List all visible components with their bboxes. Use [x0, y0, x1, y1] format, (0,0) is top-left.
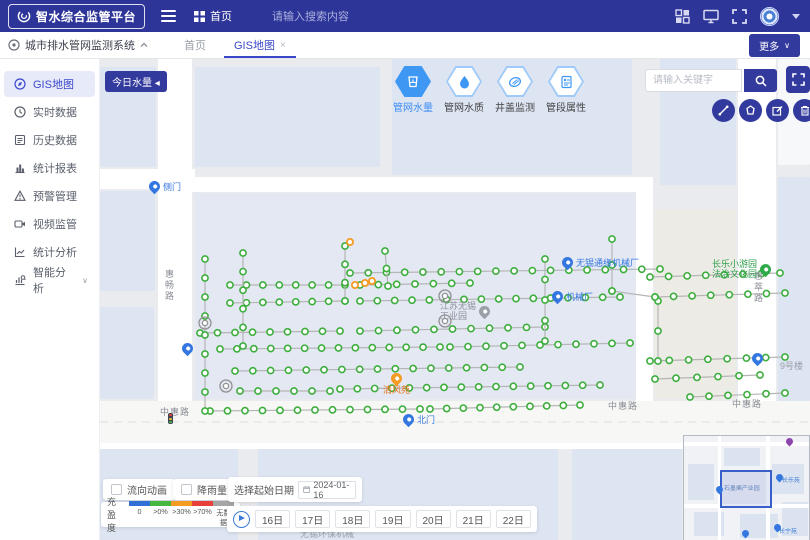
- manhole-marker-green[interactable]: [639, 266, 645, 272]
- today-water-volume-button[interactable]: 今日水量 ◂: [105, 71, 167, 92]
- manhole-marker-green[interactable]: [782, 290, 788, 296]
- manhole-marker-green[interactable]: [708, 292, 714, 298]
- manhole-marker-green[interactable]: [309, 282, 315, 288]
- manhole-marker-green[interactable]: [428, 365, 434, 371]
- manhole-marker-green[interactable]: [392, 297, 398, 303]
- layer-manhole-monitor-button[interactable]: 井盖监测: [494, 66, 536, 114]
- manhole-marker-orange[interactable]: [352, 282, 358, 288]
- manhole-marker-green[interactable]: [496, 296, 502, 302]
- sidebar-item-history-data[interactable]: 历史数据: [4, 127, 95, 153]
- manhole-marker-green[interactable]: [427, 406, 433, 412]
- manhole-marker-green[interactable]: [465, 344, 471, 350]
- manhole-marker-green[interactable]: [560, 402, 566, 408]
- manhole-marker-green[interactable]: [409, 297, 415, 303]
- manhole-marker-green[interactable]: [240, 250, 246, 256]
- manhole-marker-green[interactable]: [545, 383, 551, 389]
- manhole-marker-green[interactable]: [309, 298, 315, 304]
- manhole-marker-green[interactable]: [260, 299, 266, 305]
- ruler-icon: [718, 105, 729, 116]
- manhole-marker-green[interactable]: [325, 282, 331, 288]
- manhole-marker-green[interactable]: [294, 407, 300, 413]
- manhole-marker-green[interactable]: [744, 392, 750, 398]
- day-button-16[interactable]: 16日: [255, 510, 290, 528]
- manhole-marker-green[interactable]: [685, 357, 691, 363]
- manhole-marker-green[interactable]: [609, 236, 615, 242]
- manhole-marker-green[interactable]: [501, 343, 507, 349]
- header-home-link[interactable]: 首页: [194, 8, 232, 24]
- manhole-marker-green[interactable]: [329, 407, 335, 413]
- manhole-marker-green[interactable]: [689, 293, 695, 299]
- day-button-22[interactable]: 22日: [496, 510, 531, 528]
- manhole-marker-green[interactable]: [260, 282, 266, 288]
- map-road: [158, 59, 192, 441]
- layer-pipe-attribute-button[interactable]: 管段属性: [545, 66, 587, 114]
- manhole-marker-green[interactable]: [542, 317, 548, 323]
- manhole-marker-green[interactable]: [232, 368, 238, 374]
- manhole-marker-green[interactable]: [617, 294, 623, 300]
- manhole-marker-green[interactable]: [291, 388, 297, 394]
- manhole-marker-green[interactable]: [347, 270, 353, 276]
- manhole-marker-green[interactable]: [591, 341, 597, 347]
- manhole-marker-green[interactable]: [673, 375, 679, 381]
- manhole-marker-green[interactable]: [652, 376, 658, 382]
- manhole-marker-green[interactable]: [555, 342, 561, 348]
- app-title: 智水综合监管平台: [36, 8, 136, 25]
- manhole-marker-green[interactable]: [202, 275, 208, 281]
- map-pin-icon[interactable]: [560, 255, 576, 271]
- draw-edit-button[interactable]: [766, 99, 789, 122]
- manhole-marker-green[interactable]: [726, 292, 732, 298]
- map-pin-icon[interactable]: [750, 351, 766, 367]
- manhole-marker-green[interactable]: [523, 324, 529, 330]
- manhole-marker-green[interactable]: [372, 385, 378, 391]
- manhole-marker-green[interactable]: [242, 408, 248, 414]
- manhole-marker-green[interactable]: [357, 366, 363, 372]
- manhole-marker-green[interactable]: [382, 248, 388, 254]
- manhole-marker-green[interactable]: [782, 390, 788, 396]
- manhole-marker-green[interactable]: [374, 298, 380, 304]
- manhole-marker-green[interactable]: [335, 345, 341, 351]
- bar-chart-icon: [14, 162, 26, 174]
- manhole-marker-green[interactable]: [438, 269, 444, 275]
- manhole-marker-green[interactable]: [202, 256, 208, 262]
- manhole-marker-green[interactable]: [259, 407, 265, 413]
- manhole-marker-green[interactable]: [268, 367, 274, 373]
- manhole-marker-green[interactable]: [573, 341, 579, 347]
- manhole-marker-green[interactable]: [577, 402, 583, 408]
- manhole-marker-green[interactable]: [392, 366, 398, 372]
- manhole-marker-green[interactable]: [357, 328, 363, 334]
- day-button-19[interactable]: 19日: [375, 510, 410, 528]
- manhole-marker-green[interactable]: [684, 273, 690, 279]
- manhole-marker-green[interactable]: [354, 386, 360, 392]
- manhole-marker-green[interactable]: [486, 325, 492, 331]
- manhole-marker-green[interactable]: [460, 405, 466, 411]
- manhole-marker-green[interactable]: [647, 274, 653, 280]
- sidebar-item-statistics-report[interactable]: 统计报表: [4, 155, 95, 181]
- manhole-marker-green[interactable]: [268, 345, 274, 351]
- manhole-marker-green[interactable]: [251, 346, 257, 352]
- collapse-chevron-icon[interactable]: [140, 42, 148, 48]
- manhole-marker-green[interactable]: [519, 342, 525, 348]
- legend-scale: 0 >0% >30% >70% 无数据: [129, 501, 234, 529]
- manhole-marker-green[interactable]: [777, 270, 783, 276]
- manhole-marker-green[interactable]: [694, 374, 700, 380]
- manhole-marker-green[interactable]: [430, 281, 436, 287]
- day-button-21[interactable]: 21日: [456, 510, 491, 528]
- manhole-marker-green[interactable]: [240, 343, 246, 349]
- manhole-marker-green[interactable]: [234, 346, 240, 352]
- tab-gis-map[interactable]: GIS地图 ×: [220, 32, 300, 58]
- map-pin-icon[interactable]: [758, 261, 774, 277]
- gis-map-canvas[interactable]: 中惠路中惠路中惠路惠畅路惠萃路侧门北门无锡通缘机械厂机械厂长乐小游园法治文化园江…: [100, 59, 810, 540]
- manhole-marker-green[interactable]: [412, 327, 418, 333]
- manhole-marker-green[interactable]: [655, 328, 661, 334]
- poi-label: 侧门: [163, 182, 181, 192]
- start-date-input[interactable]: 2024-01-16: [298, 481, 356, 499]
- manhole-marker-green[interactable]: [513, 296, 519, 302]
- map-pin-icon[interactable]: [550, 289, 566, 305]
- map-pin-icon[interactable]: [180, 341, 196, 357]
- manhole-marker-green[interactable]: [562, 382, 568, 388]
- manhole-marker-green[interactable]: [505, 325, 511, 331]
- manhole-marker-green[interactable]: [467, 280, 473, 286]
- manhole-marker-gray-core: [223, 383, 228, 388]
- map-search-input[interactable]: [645, 69, 742, 92]
- manhole-marker-green[interactable]: [383, 265, 389, 271]
- manhole-marker-green[interactable]: [757, 372, 763, 378]
- tab-close-icon[interactable]: ×: [280, 40, 286, 51]
- manhole-marker-green[interactable]: [542, 276, 548, 282]
- manhole-marker-green[interactable]: [255, 388, 261, 394]
- minimap-label: 长宁苑: [779, 527, 797, 536]
- video-icon: [14, 218, 26, 230]
- screen-split-icon[interactable]: [675, 9, 690, 24]
- manhole-marker-green[interactable]: [441, 384, 447, 390]
- manhole-marker-green[interactable]: [232, 329, 238, 335]
- measure-distance-button[interactable]: [712, 99, 735, 122]
- flow-animation-checkbox[interactable]: [111, 484, 122, 495]
- sidebar-item-gis-map[interactable]: GIS地图: [4, 71, 95, 97]
- manhole-marker-green[interactable]: [494, 404, 500, 410]
- manhole-marker-orange[interactable]: [369, 278, 375, 284]
- manhole-marker-green[interactable]: [510, 383, 516, 389]
- day-button-20[interactable]: 20日: [416, 510, 451, 528]
- start-date-label: 选择起始日期: [234, 482, 294, 497]
- manhole-marker-green[interactable]: [412, 281, 418, 287]
- manhole-marker-green[interactable]: [273, 388, 279, 394]
- manhole-marker-green[interactable]: [240, 287, 246, 293]
- manhole-marker-green[interactable]: [542, 256, 548, 262]
- manhole-marker-green[interactable]: [309, 388, 315, 394]
- map-pin-icon[interactable]: [477, 303, 493, 319]
- manhole-marker-green[interactable]: [763, 391, 769, 397]
- manhole-marker-green[interactable]: [202, 408, 208, 414]
- manhole-marker-orange[interactable]: [362, 280, 368, 286]
- manhole-marker-green[interactable]: [202, 332, 208, 338]
- manhole-marker-green[interactable]: [437, 344, 443, 350]
- manhole-marker-green[interactable]: [493, 384, 499, 390]
- manhole-marker-green[interactable]: [243, 300, 249, 306]
- manhole-marker-green[interactable]: [403, 344, 409, 350]
- manhole-marker-green[interactable]: [217, 346, 223, 352]
- expand-chevron-icon[interactable]: ∨: [82, 276, 88, 285]
- manhole-marker-green[interactable]: [325, 298, 331, 304]
- manhole-icon: [508, 75, 522, 89]
- manhole-marker-green[interactable]: [357, 298, 363, 304]
- manhole-marker-green[interactable]: [705, 356, 711, 362]
- map-poi-pin-blue[interactable]: 北门: [403, 414, 435, 425]
- manhole-marker-green[interactable]: [303, 367, 309, 373]
- sidebar-item-statistics-analysis[interactable]: 统计分析: [4, 239, 95, 265]
- manhole-marker-green[interactable]: [365, 270, 371, 276]
- manhole-marker-green[interactable]: [293, 282, 299, 288]
- manhole-marker-green[interactable]: [530, 295, 536, 301]
- day-button-17[interactable]: 17日: [295, 510, 330, 528]
- manhole-marker-green[interactable]: [510, 404, 516, 410]
- manhole-marker-gray-core: [442, 293, 447, 298]
- manhole-marker-green[interactable]: [665, 273, 671, 279]
- manhole-marker-green[interactable]: [237, 388, 243, 394]
- manhole-marker-green[interactable]: [528, 383, 534, 389]
- manhole-marker-green[interactable]: [499, 364, 505, 370]
- manhole-marker-green[interactable]: [511, 268, 517, 274]
- manhole-marker-green[interactable]: [227, 300, 233, 306]
- user-menu-chevron-icon[interactable]: [792, 14, 800, 19]
- manhole-marker-green[interactable]: [446, 365, 452, 371]
- manhole-marker-green[interactable]: [763, 290, 769, 296]
- manhole-marker-green[interactable]: [337, 328, 343, 334]
- manhole-marker-green[interactable]: [458, 384, 464, 390]
- manhole-marker-green[interactable]: [364, 406, 370, 412]
- manhole-marker-green[interactable]: [456, 268, 462, 274]
- poi-label: 江苏无锡工业园: [440, 301, 476, 321]
- manhole-marker-green[interactable]: [369, 345, 375, 351]
- map-search-button[interactable]: [744, 69, 777, 92]
- manhole-marker-green[interactable]: [394, 327, 400, 333]
- manhole-marker-green[interactable]: [517, 364, 523, 370]
- manhole-marker-green[interactable]: [580, 382, 586, 388]
- manhole-marker-green[interactable]: [214, 330, 220, 336]
- manhole-marker-green[interactable]: [202, 294, 208, 300]
- tab-home[interactable]: 首页: [170, 32, 220, 58]
- menu-toggle-icon[interactable]: [161, 10, 176, 22]
- manhole-marker-green[interactable]: [652, 294, 658, 300]
- manhole-marker-green[interactable]: [339, 366, 345, 372]
- legend-item: 0: [129, 501, 150, 529]
- manhole-marker-green[interactable]: [447, 344, 453, 350]
- manhole-marker-green[interactable]: [240, 324, 246, 330]
- manhole-marker-green[interactable]: [627, 340, 633, 346]
- manhole-marker-green[interactable]: [394, 281, 400, 287]
- map-poi-pin-blue[interactable]: 无锡通缘机械厂: [562, 257, 639, 268]
- manhole-marker-orange[interactable]: [347, 239, 353, 245]
- search-icon: [755, 75, 767, 87]
- manhole-marker-green[interactable]: [319, 328, 325, 334]
- manhole-marker-green[interactable]: [227, 282, 233, 288]
- fullscreen-corners-icon[interactable]: [732, 9, 747, 24]
- manhole-marker-green[interactable]: [347, 407, 353, 413]
- manhole-marker-green[interactable]: [276, 282, 282, 288]
- manhole-marker-green[interactable]: [342, 280, 348, 286]
- manhole-marker-green[interactable]: [657, 266, 663, 272]
- manhole-marker-green[interactable]: [724, 356, 730, 362]
- manhole-marker-green[interactable]: [302, 345, 308, 351]
- manhole-marker-green[interactable]: [224, 408, 230, 414]
- manhole-marker-green[interactable]: [375, 328, 381, 334]
- manhole-marker-green[interactable]: [267, 329, 273, 335]
- manhole-marker-green[interactable]: [597, 382, 603, 388]
- manhole-marker-green[interactable]: [420, 269, 426, 275]
- manhole-marker-green[interactable]: [529, 268, 535, 274]
- manhole-marker-green[interactable]: [476, 384, 482, 390]
- map-poi-pin-orange[interactable]: 清风苑: [383, 373, 410, 395]
- more-button-label: 更多: [759, 38, 779, 53]
- manhole-marker-green[interactable]: [420, 344, 426, 350]
- manhole-marker-green[interactable]: [547, 267, 553, 273]
- manhole-marker-green[interactable]: [202, 313, 208, 319]
- manhole-marker-green[interactable]: [426, 297, 432, 303]
- manhole-marker-green[interactable]: [386, 344, 392, 350]
- manhole-marker-green[interactable]: [666, 357, 672, 363]
- map-pin-icon[interactable]: [389, 371, 405, 387]
- manhole-marker-green[interactable]: [342, 298, 348, 304]
- layer-water-volume-button[interactable]: 管网水量: [392, 66, 434, 114]
- manhole-marker-green[interactable]: [402, 269, 408, 275]
- manhole-marker-green[interactable]: [725, 392, 731, 398]
- manhole-marker-green[interactable]: [276, 299, 282, 305]
- manhole-marker-green[interactable]: [337, 386, 343, 392]
- manhole-marker-green[interactable]: [302, 328, 308, 334]
- map-poi-pin-blue[interactable]: 侧门: [149, 181, 181, 192]
- manhole-marker-green[interactable]: [249, 329, 255, 335]
- monitor-icon[interactable]: [703, 9, 719, 24]
- manhole-marker-green[interactable]: [703, 272, 709, 278]
- manhole-marker-green[interactable]: [240, 306, 246, 312]
- system-title[interactable]: 城市排水管网监测系统: [0, 32, 156, 58]
- manhole-marker-green[interactable]: [202, 370, 208, 376]
- manhole-marker-green[interactable]: [352, 345, 358, 351]
- manhole-marker-green[interactable]: [609, 340, 615, 346]
- manhole-marker-green[interactable]: [449, 280, 455, 286]
- header-actions: [675, 7, 800, 26]
- manhole-marker-green[interactable]: [542, 297, 548, 303]
- manhole-marker-green[interactable]: [342, 261, 348, 267]
- top-header: 智水综合监管平台 首页 请输入搜索内容: [0, 0, 810, 32]
- overview-minimap[interactable]: 石墨烯产业园长乐苑长宁苑: [683, 435, 810, 540]
- manhole-marker-green[interactable]: [743, 355, 749, 361]
- sidebar-item-label: GIS地图: [33, 76, 74, 92]
- manhole-marker-green[interactable]: [655, 358, 661, 364]
- manhole-marker-green[interactable]: [277, 407, 283, 413]
- manhole-marker-green[interactable]: [736, 373, 742, 379]
- rainfall-toggle[interactable]: 降雨量: [173, 479, 235, 500]
- manhole-marker-green[interactable]: [542, 338, 548, 344]
- user-avatar[interactable]: [760, 7, 779, 26]
- rainfall-checkbox[interactable]: [181, 484, 192, 495]
- area-polygon-icon: [745, 105, 756, 116]
- sidebar-item-smart-analysis[interactable]: 智能分析 ∨: [4, 267, 95, 293]
- alert-icon: [14, 190, 26, 202]
- map-poi-pin-blue[interactable]: 机械厂: [552, 291, 593, 302]
- map-pin-icon[interactable]: [147, 179, 163, 195]
- manhole-marker-green[interactable]: [399, 406, 405, 412]
- manhole-marker-green[interactable]: [202, 389, 208, 395]
- map-fullscreen-button[interactable]: [786, 66, 810, 93]
- manhole-marker-green[interactable]: [609, 288, 615, 294]
- manhole-marker-green[interactable]: [687, 394, 693, 400]
- manhole-marker-green[interactable]: [600, 294, 606, 300]
- manhole-marker-green[interactable]: [318, 345, 324, 351]
- map-poi-pin-gray[interactable]: 江苏无锡工业园: [440, 301, 490, 321]
- manhole-marker-green[interactable]: [293, 299, 299, 305]
- manhole-marker-green[interactable]: [544, 403, 550, 409]
- manhole-marker-green[interactable]: [410, 365, 416, 371]
- manhole-marker-green[interactable]: [374, 366, 380, 372]
- day-button-18[interactable]: 18日: [335, 510, 370, 528]
- manhole-marker-green[interactable]: [285, 345, 291, 351]
- map-poi-pin-green[interactable]: 长乐小游园法治文化园: [712, 259, 771, 279]
- manhole-marker-green[interactable]: [284, 329, 290, 335]
- manhole-marker-green[interactable]: [463, 365, 469, 371]
- map-search-group: [645, 69, 777, 92]
- manhole-marker-green[interactable]: [444, 405, 450, 411]
- manhole-marker-green[interactable]: [468, 326, 474, 332]
- manhole-marker-green[interactable]: [483, 343, 489, 349]
- manhole-marker-green[interactable]: [285, 367, 291, 373]
- more-button[interactable]: 更多∨: [749, 34, 800, 57]
- layer-water-quality-button[interactable]: 管网水质: [443, 66, 485, 114]
- manhole-marker-green[interactable]: [670, 293, 676, 299]
- manhole-marker-green[interactable]: [250, 368, 256, 374]
- map-pin-icon[interactable]: [401, 412, 417, 428]
- play-button[interactable]: [233, 511, 250, 528]
- manhole-marker-green[interactable]: [782, 354, 788, 360]
- manhole-marker-green[interactable]: [327, 388, 333, 394]
- manhole-marker-green[interactable]: [385, 283, 391, 289]
- manhole-marker-green[interactable]: [477, 405, 483, 411]
- manhole-marker-green[interactable]: [647, 358, 653, 364]
- manhole-marker-green[interactable]: [321, 367, 327, 373]
- manhole-marker-green[interactable]: [527, 403, 533, 409]
- manhole-marker-green[interactable]: [493, 268, 499, 274]
- manhole-marker-green[interactable]: [424, 385, 430, 391]
- manhole-marker-green[interactable]: [240, 269, 246, 275]
- manhole-marker-green[interactable]: [449, 326, 455, 332]
- manhole-marker-green[interactable]: [706, 393, 712, 399]
- open-tabs: 首页 GIS地图 ×: [170, 32, 300, 58]
- manhole-marker-green[interactable]: [202, 351, 208, 357]
- manhole-marker-green[interactable]: [417, 406, 423, 412]
- manhole-marker-green[interactable]: [481, 364, 487, 370]
- manhole-marker-green[interactable]: [475, 268, 481, 274]
- manhole-marker-green[interactable]: [431, 326, 437, 332]
- manhole-marker-green[interactable]: [745, 291, 751, 297]
- sidebar-item-warning-management[interactable]: 预警管理: [4, 183, 95, 209]
- manhole-marker-green[interactable]: [715, 374, 721, 380]
- manhole-marker-green[interactable]: [382, 406, 388, 412]
- sidebar-item-realtime-data[interactable]: 实时数据: [4, 99, 95, 125]
- map-poi-pin-blue[interactable]: [182, 343, 196, 354]
- clear-delete-button[interactable]: [793, 99, 810, 122]
- sidebar-item-label: 实时数据: [33, 104, 77, 120]
- map-poi-pin-blue[interactable]: [752, 353, 766, 364]
- header-search-input[interactable]: 请输入搜索内容: [272, 8, 349, 24]
- measure-area-button[interactable]: [739, 99, 762, 122]
- manhole-marker-green[interactable]: [312, 407, 318, 413]
- sidebar-item-video-supervision[interactable]: 视频监管: [4, 211, 95, 237]
- manhole-marker-green[interactable]: [375, 282, 381, 288]
